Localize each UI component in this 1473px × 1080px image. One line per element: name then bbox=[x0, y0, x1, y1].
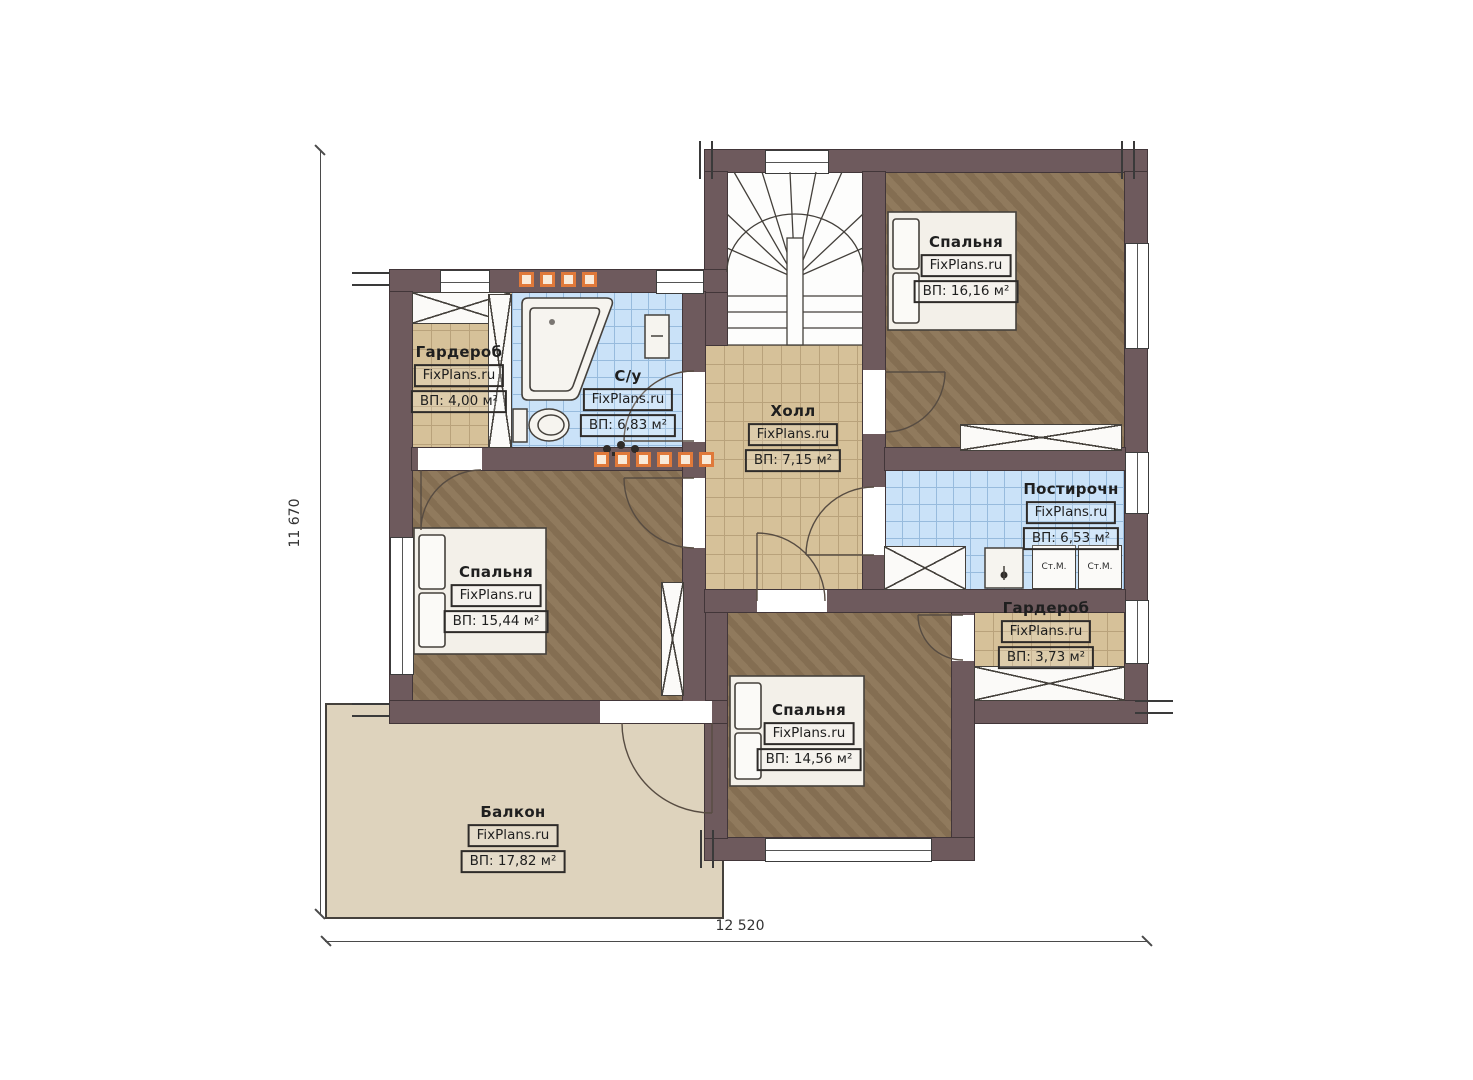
room-label-wardrobe-top-left: Гардероб FixPlans.ru ВП: 4,00 м² bbox=[411, 343, 507, 413]
wardrobe-closet-icon bbox=[884, 546, 966, 590]
room-area: ВП: 3,73 м² bbox=[998, 646, 1094, 669]
door-opening bbox=[418, 448, 482, 470]
room-label-bedroom-bottom: Спальня FixPlans.ru ВП: 14,56 м² bbox=[757, 701, 862, 771]
room-label-laundry: Постирочн FixPlans.ru ВП: 6,53 м² bbox=[1023, 480, 1119, 550]
room-name: Спальня bbox=[929, 233, 1003, 251]
wall bbox=[974, 701, 1147, 723]
watermark-badge: FixPlans.ru bbox=[1026, 501, 1117, 524]
floor-bedroom-top-right bbox=[885, 172, 1125, 448]
room-area: ВП: 16,16 м² bbox=[914, 280, 1019, 303]
heated-floor-marker-icon bbox=[678, 452, 693, 467]
wardrobe-closet-icon bbox=[974, 666, 1125, 701]
room-name: Постирочн bbox=[1023, 480, 1118, 498]
room-label-wardrobe-right: Гардероб FixPlans.ru ВП: 3,73 м² bbox=[998, 599, 1094, 669]
watermark-badge: FixPlans.ru bbox=[748, 423, 839, 446]
axis-tick bbox=[1135, 700, 1173, 702]
window-icon bbox=[390, 537, 414, 675]
door-opening bbox=[863, 487, 885, 555]
door-opening bbox=[863, 370, 885, 434]
floor-plan: Ст.М. Ст.М. bbox=[0, 0, 1473, 1080]
room-area: ВП: 14,56 м² bbox=[757, 748, 862, 771]
heated-floor-marker-icon bbox=[582, 272, 597, 287]
heated-floor-marker-icon bbox=[699, 452, 714, 467]
axis-tick bbox=[352, 715, 390, 717]
room-label-balcony: Балкон FixPlans.ru ВП: 17,82 м² bbox=[461, 803, 566, 873]
room-name: Балкон bbox=[480, 803, 545, 821]
room-area: ВП: 6,53 м² bbox=[1023, 527, 1119, 550]
window-icon bbox=[765, 838, 932, 862]
room-label-bathroom: С/у FixPlans.ru ВП: 6,83 м² bbox=[580, 367, 676, 437]
room-area: ВП: 7,15 м² bbox=[745, 449, 841, 472]
room-label-hall: Холл FixPlans.ru ВП: 7,15 м² bbox=[745, 402, 841, 472]
washing-machine-icon: Ст.М. bbox=[1032, 545, 1076, 589]
room-label-bedroom-top-right: Спальня FixPlans.ru ВП: 16,16 м² bbox=[914, 233, 1019, 303]
dimension-line-horizontal bbox=[325, 941, 1147, 942]
window-icon bbox=[1125, 452, 1149, 514]
room-name: Спальня bbox=[772, 701, 846, 719]
room-name: Спальня bbox=[459, 563, 533, 581]
door-opening bbox=[683, 372, 705, 442]
axis-tick bbox=[1121, 141, 1123, 179]
heated-floor-marker-icon bbox=[519, 272, 534, 287]
room-area: ВП: 4,00 м² bbox=[411, 390, 507, 413]
room-label-bedroom-left: Спальня FixPlans.ru ВП: 15,44 м² bbox=[444, 563, 549, 633]
heated-floor-marker-icon bbox=[540, 272, 555, 287]
heated-floor-marker-row bbox=[594, 452, 714, 467]
door-opening bbox=[757, 590, 827, 612]
floor-stairwell bbox=[727, 172, 863, 345]
heated-floor-marker-icon bbox=[561, 272, 576, 287]
heated-floor-marker-icon bbox=[615, 452, 630, 467]
watermark-badge: FixPlans.ru bbox=[414, 364, 505, 387]
dimension-value-vertical: 11 670 bbox=[287, 483, 303, 563]
heated-floor-marker-row bbox=[519, 272, 597, 287]
dimension-value-horizontal: 12 520 bbox=[695, 918, 785, 934]
door-opening bbox=[600, 701, 712, 723]
door-opening bbox=[683, 478, 705, 548]
wall bbox=[885, 448, 1125, 470]
axis-tick bbox=[712, 830, 714, 868]
room-area: ВП: 17,82 м² bbox=[461, 850, 566, 873]
watermark-badge: FixPlans.ru bbox=[921, 254, 1012, 277]
heated-floor-marker-icon bbox=[657, 452, 672, 467]
washing-machine-label: Ст.М. bbox=[1087, 562, 1112, 572]
wardrobe-closet-icon bbox=[960, 424, 1122, 451]
window-icon bbox=[440, 270, 490, 294]
watermark-badge: FixPlans.ru bbox=[468, 824, 559, 847]
window-icon bbox=[765, 150, 829, 174]
watermark-badge: FixPlans.ru bbox=[764, 722, 855, 745]
window-icon bbox=[656, 270, 704, 294]
room-area: ВП: 15,44 м² bbox=[444, 610, 549, 633]
axis-tick bbox=[700, 830, 702, 868]
axis-tick bbox=[1135, 712, 1173, 714]
dimension-line-vertical bbox=[320, 150, 321, 915]
washing-machine-icon: Ст.М. bbox=[1078, 545, 1122, 589]
axis-tick bbox=[1133, 141, 1135, 179]
room-name: Гардероб bbox=[1003, 599, 1090, 617]
heated-floor-marker-icon bbox=[636, 452, 651, 467]
room-area: ВП: 6,83 м² bbox=[580, 414, 676, 437]
wall bbox=[705, 172, 727, 345]
axis-tick bbox=[352, 703, 390, 705]
room-name: Гардероб bbox=[416, 343, 503, 361]
wardrobe-closet-icon bbox=[661, 582, 684, 696]
watermark-badge: FixPlans.ru bbox=[583, 388, 674, 411]
axis-tick bbox=[699, 141, 701, 179]
window-icon bbox=[1125, 243, 1149, 349]
washing-machine-label: Ст.М. bbox=[1041, 562, 1066, 572]
axis-tick bbox=[352, 284, 390, 286]
room-name: Холл bbox=[770, 402, 815, 420]
axis-tick bbox=[352, 272, 390, 274]
window-icon bbox=[1125, 600, 1149, 664]
room-name: С/у bbox=[614, 367, 641, 385]
door-opening bbox=[952, 615, 974, 661]
watermark-badge: FixPlans.ru bbox=[451, 584, 542, 607]
axis-tick bbox=[711, 141, 713, 179]
watermark-badge: FixPlans.ru bbox=[1001, 620, 1092, 643]
heated-floor-marker-icon bbox=[594, 452, 609, 467]
